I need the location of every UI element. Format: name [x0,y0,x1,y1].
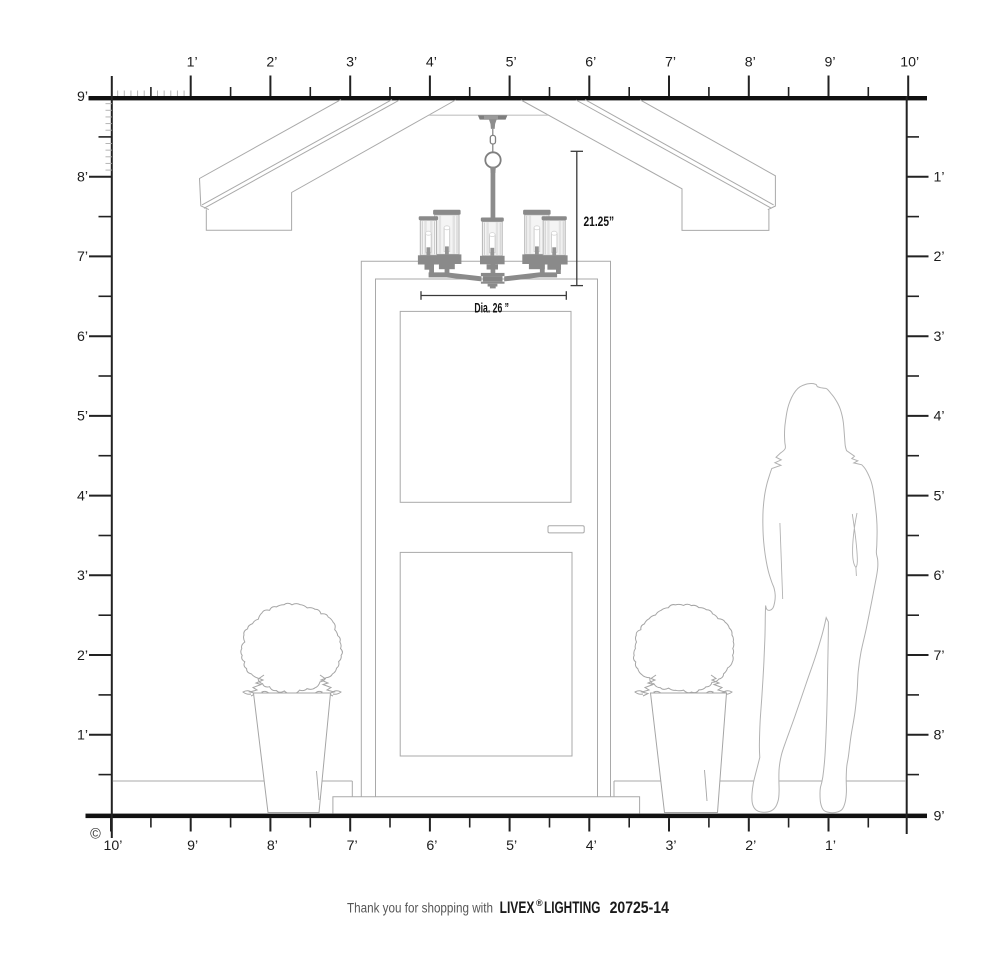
svg-text:8’: 8’ [77,170,88,186]
svg-text:®: ® [536,898,543,908]
svg-text:LIGHTING: LIGHTING [544,899,600,917]
svg-text:3’: 3’ [346,55,357,71]
svg-text:6’: 6’ [585,55,596,71]
svg-text:2’: 2’ [77,648,88,664]
svg-text:Dia. 26 ”: Dia. 26 ” [474,301,509,316]
svg-text:2’: 2’ [745,838,756,854]
svg-text:6’: 6’ [426,838,437,854]
svg-text:1’: 1’ [187,55,198,71]
svg-text:7’: 7’ [347,838,358,854]
svg-text:8’: 8’ [934,728,945,744]
svg-text:6’: 6’ [77,329,88,345]
svg-text:1’: 1’ [934,170,945,186]
svg-text:10’: 10’ [104,838,123,854]
svg-text:5’: 5’ [506,838,517,854]
svg-text:9’: 9’ [824,55,835,71]
svg-text:2’: 2’ [934,249,945,265]
svg-text:Thank you for shopping with: Thank you for shopping with [347,901,493,916]
svg-text:9’: 9’ [187,838,198,854]
svg-text:9’: 9’ [77,89,88,105]
svg-text:4’: 4’ [586,838,597,854]
svg-text:5’: 5’ [77,409,88,425]
svg-text:3’: 3’ [934,329,945,345]
svg-text:4’: 4’ [426,55,437,71]
svg-text:6’: 6’ [934,568,945,584]
svg-text:9’: 9’ [934,809,945,825]
svg-text:8’: 8’ [267,838,278,854]
svg-text:21.25”: 21.25” [584,214,615,229]
svg-text:7’: 7’ [934,648,945,664]
svg-text:©: © [90,827,101,843]
svg-text:5’: 5’ [934,488,945,504]
svg-text:5’: 5’ [506,55,517,71]
svg-text:10’: 10’ [900,55,919,71]
svg-text:7’: 7’ [665,55,676,71]
svg-text:LIVEX: LIVEX [500,899,535,917]
svg-text:7’: 7’ [77,249,88,265]
svg-text:3’: 3’ [77,568,88,584]
svg-text:8’: 8’ [745,55,756,71]
svg-text:1’: 1’ [825,838,836,854]
svg-text:20725-14: 20725-14 [610,899,669,917]
svg-text:1’: 1’ [77,728,88,744]
svg-text:4’: 4’ [934,409,945,425]
svg-text:4’: 4’ [77,488,88,504]
svg-text:2’: 2’ [266,55,277,71]
svg-text:3’: 3’ [665,838,676,854]
